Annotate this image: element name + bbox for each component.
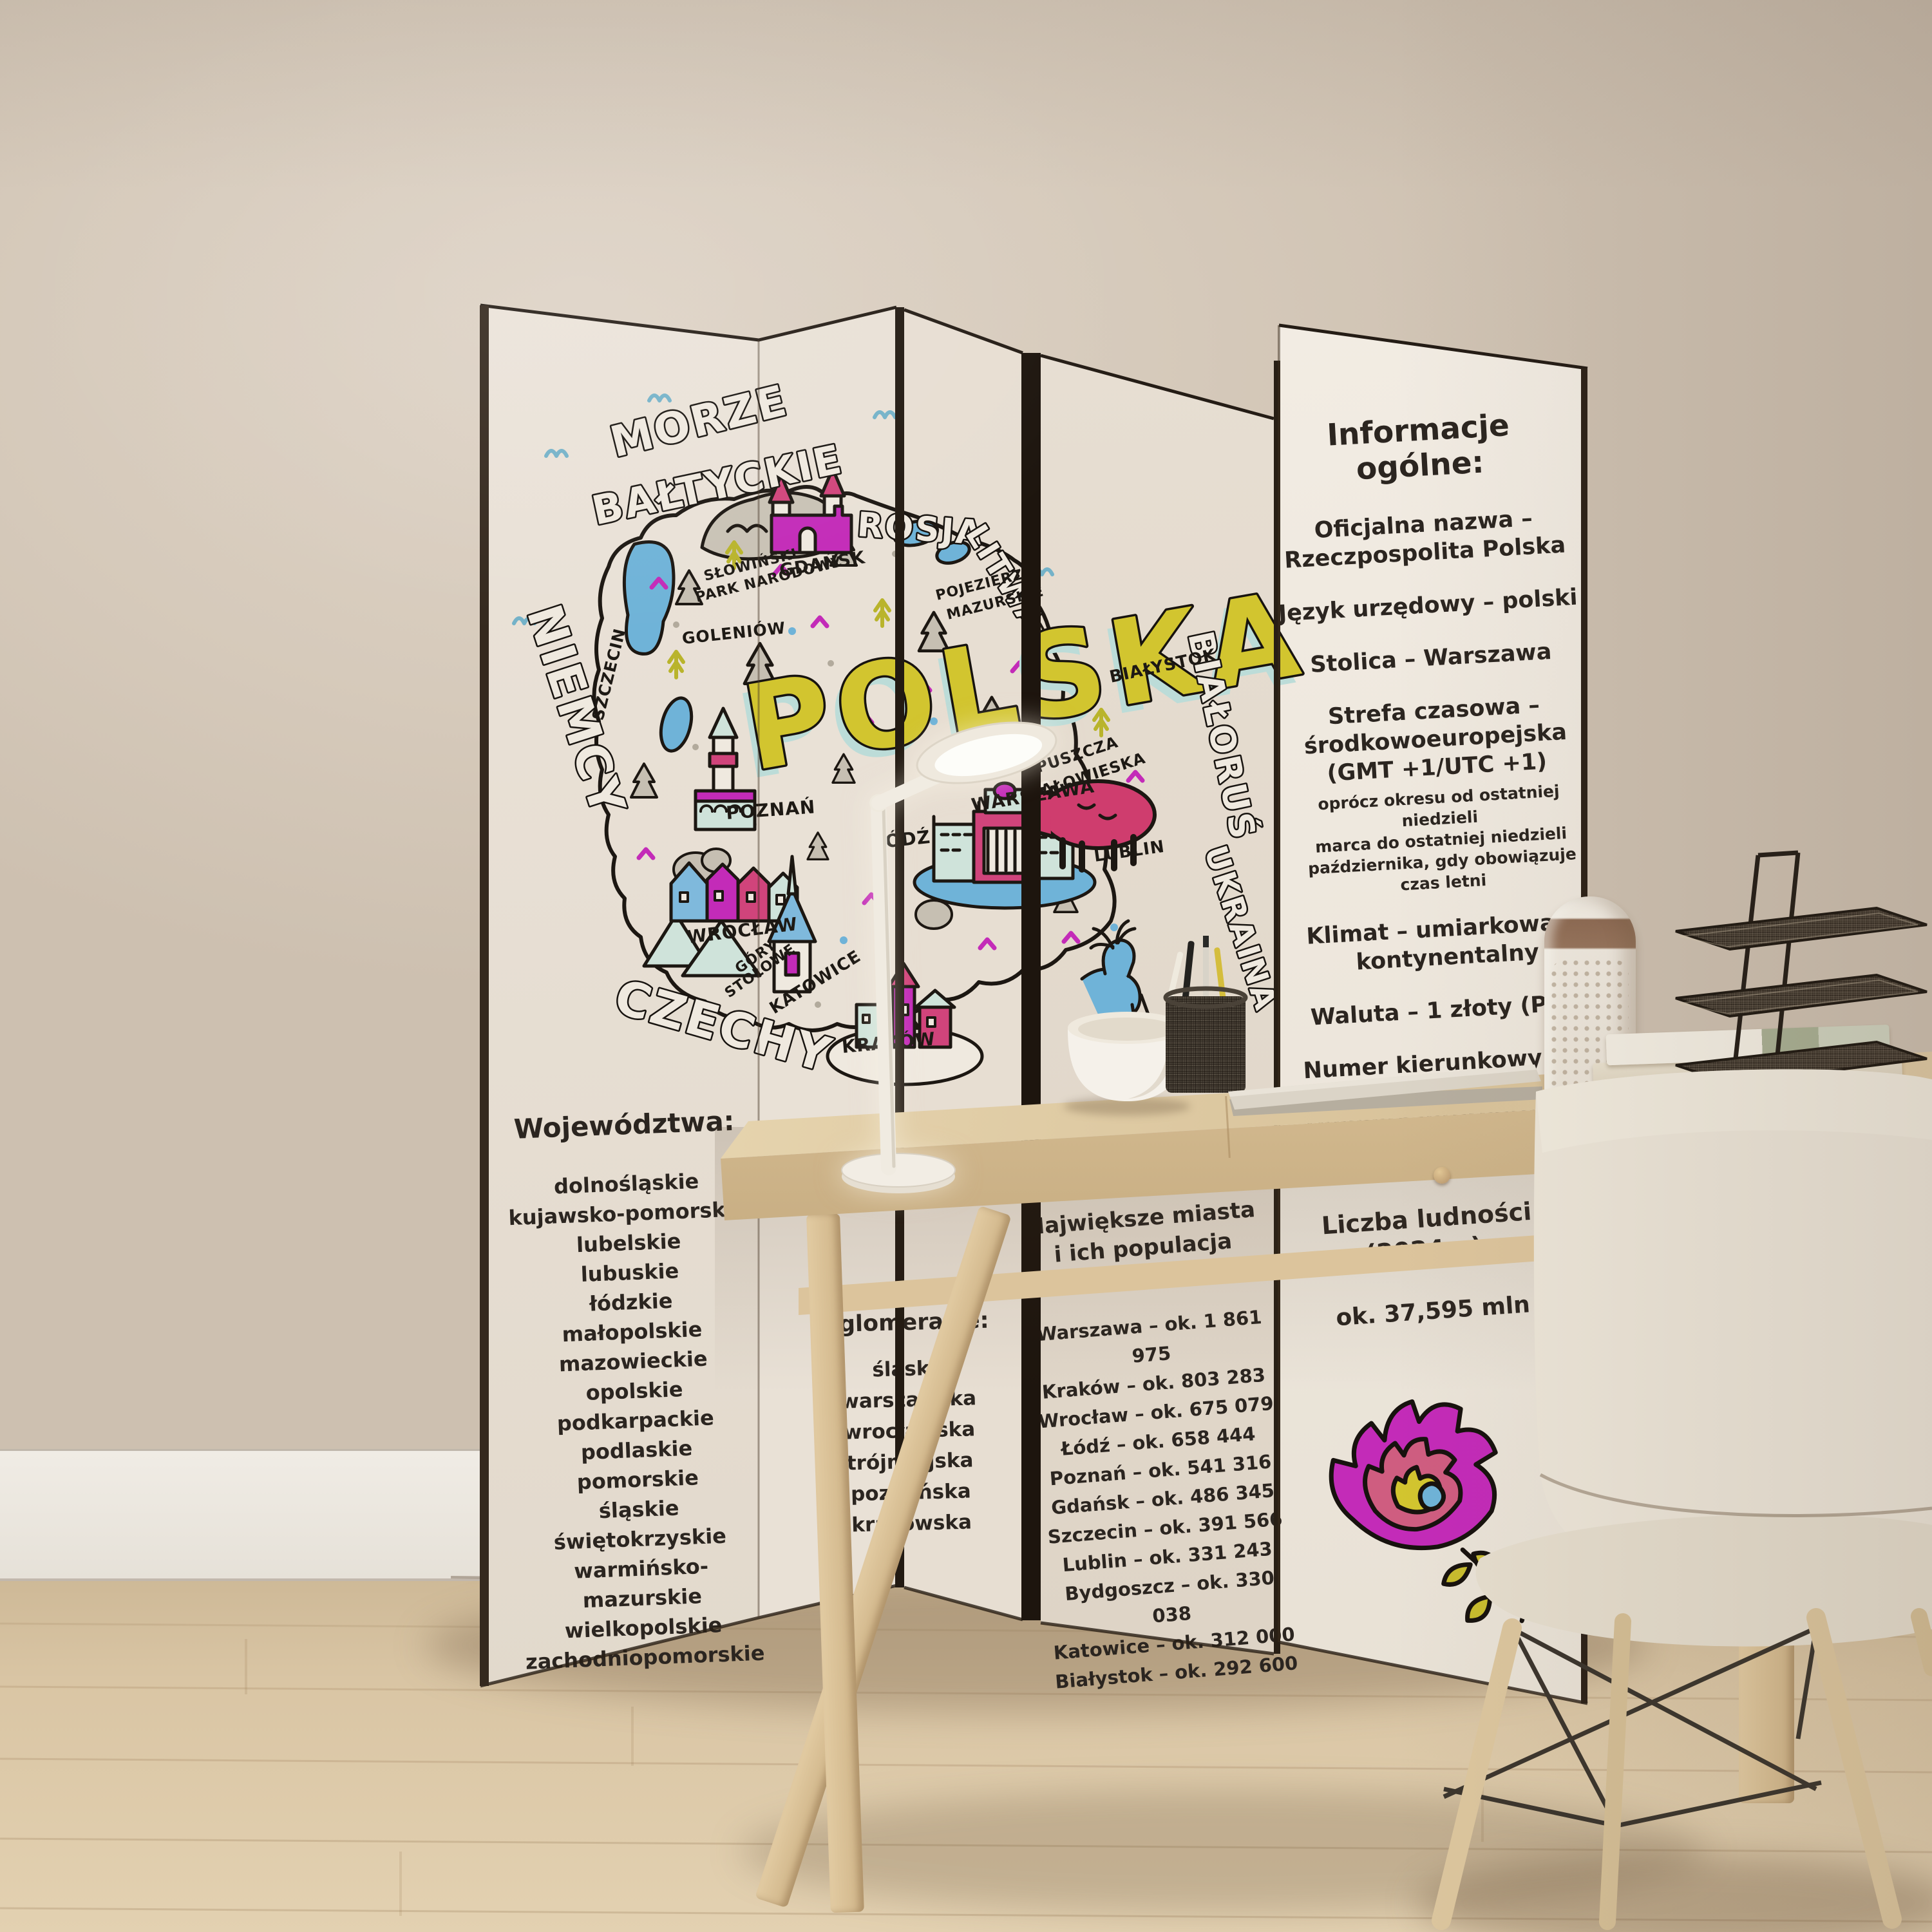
voivodeships-list: dolnośląskiekujawsko-pomorskielubelskiel… [507,1164,764,1677]
floor-plank-joint [399,1851,402,1916]
chair [1404,1063,1932,1932]
floor-plank-joint [245,1639,247,1694]
chair-legs [1441,1616,1932,1922]
cities-list: Warszawa – ok. 1 861 975Kraków – ok. 803… [1023,1302,1303,1697]
list-item: warmińsko-mazurskie [522,1549,762,1618]
info-capital: Stolica – Warszawa [1279,636,1583,681]
info-official-name: Oficjalna nazwa – Rzeczpospolita Polska [1271,502,1577,576]
wroclaw-townhouses-illustration [671,863,797,921]
info-timezone: Strefa czasowa – środkowoeuropejska (GMT… [1282,688,1589,790]
place-label: SZCZECIN [589,627,630,723]
place-label: GOLENIÓW [681,618,786,648]
room-scene: POLSKA POLSKA MORZE BAŁTYCKIE ROSJA LITW… [0,0,1932,1932]
info-language: Język urzędowy – polski [1276,583,1580,628]
desk-lamp [811,699,1088,1207]
floor-plank-joint [631,1707,634,1766]
info-timezone-note: oprócz okresu od ostatniej niedzieli mar… [1287,779,1595,902]
baseboard [0,1449,484,1581]
chair-shell [1476,1069,1932,1646]
